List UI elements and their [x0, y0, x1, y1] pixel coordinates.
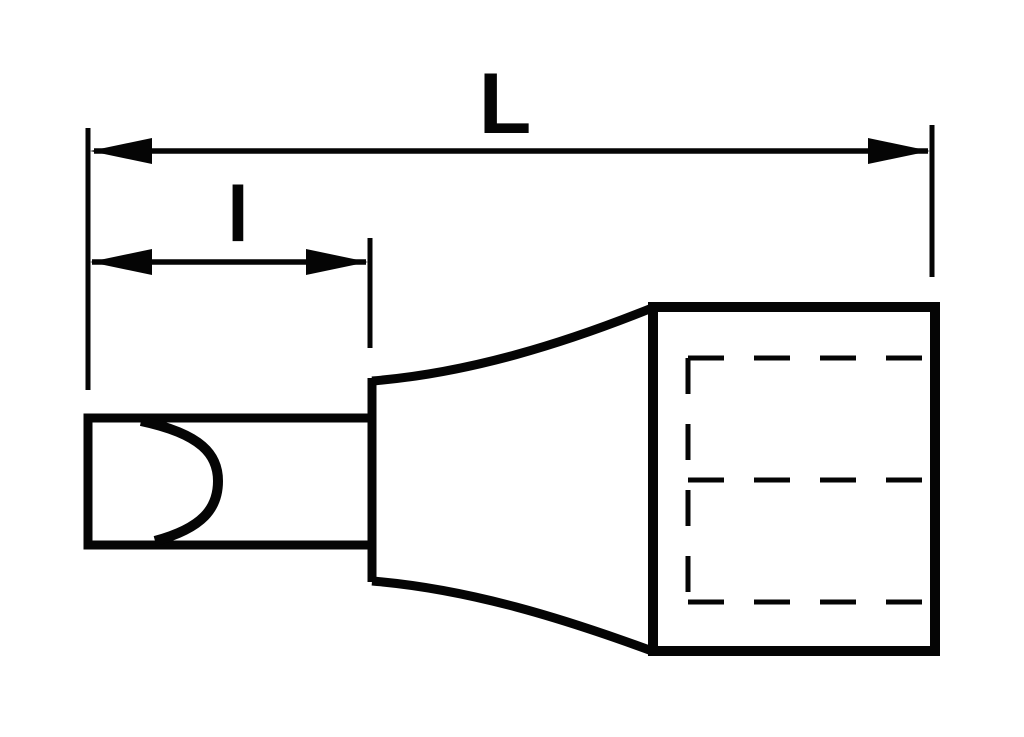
- dimension-label-overall-length: L: [479, 56, 532, 152]
- bit-socket-outline: [88, 307, 935, 651]
- dimension-overall-length: L: [88, 56, 932, 390]
- drawing-canvas: L l: [0, 0, 1024, 737]
- bit-socket-technical-drawing: L l: [0, 0, 1024, 737]
- dimension-label-bit-length: l: [227, 170, 249, 258]
- arrowhead-left-bit: [90, 249, 152, 275]
- arrowhead-right-overall: [868, 138, 930, 164]
- dimension-bit-length: l: [90, 170, 370, 348]
- bit-shank: [88, 418, 372, 545]
- square-drive-hidden-outline: [688, 358, 933, 602]
- neck-top-flare: [372, 308, 652, 381]
- neck-bottom-flare: [372, 581, 652, 651]
- slotted-blade-tip-curve: [141, 421, 218, 541]
- arrowhead-right-bit: [306, 249, 368, 275]
- arrowhead-left-overall: [90, 138, 152, 164]
